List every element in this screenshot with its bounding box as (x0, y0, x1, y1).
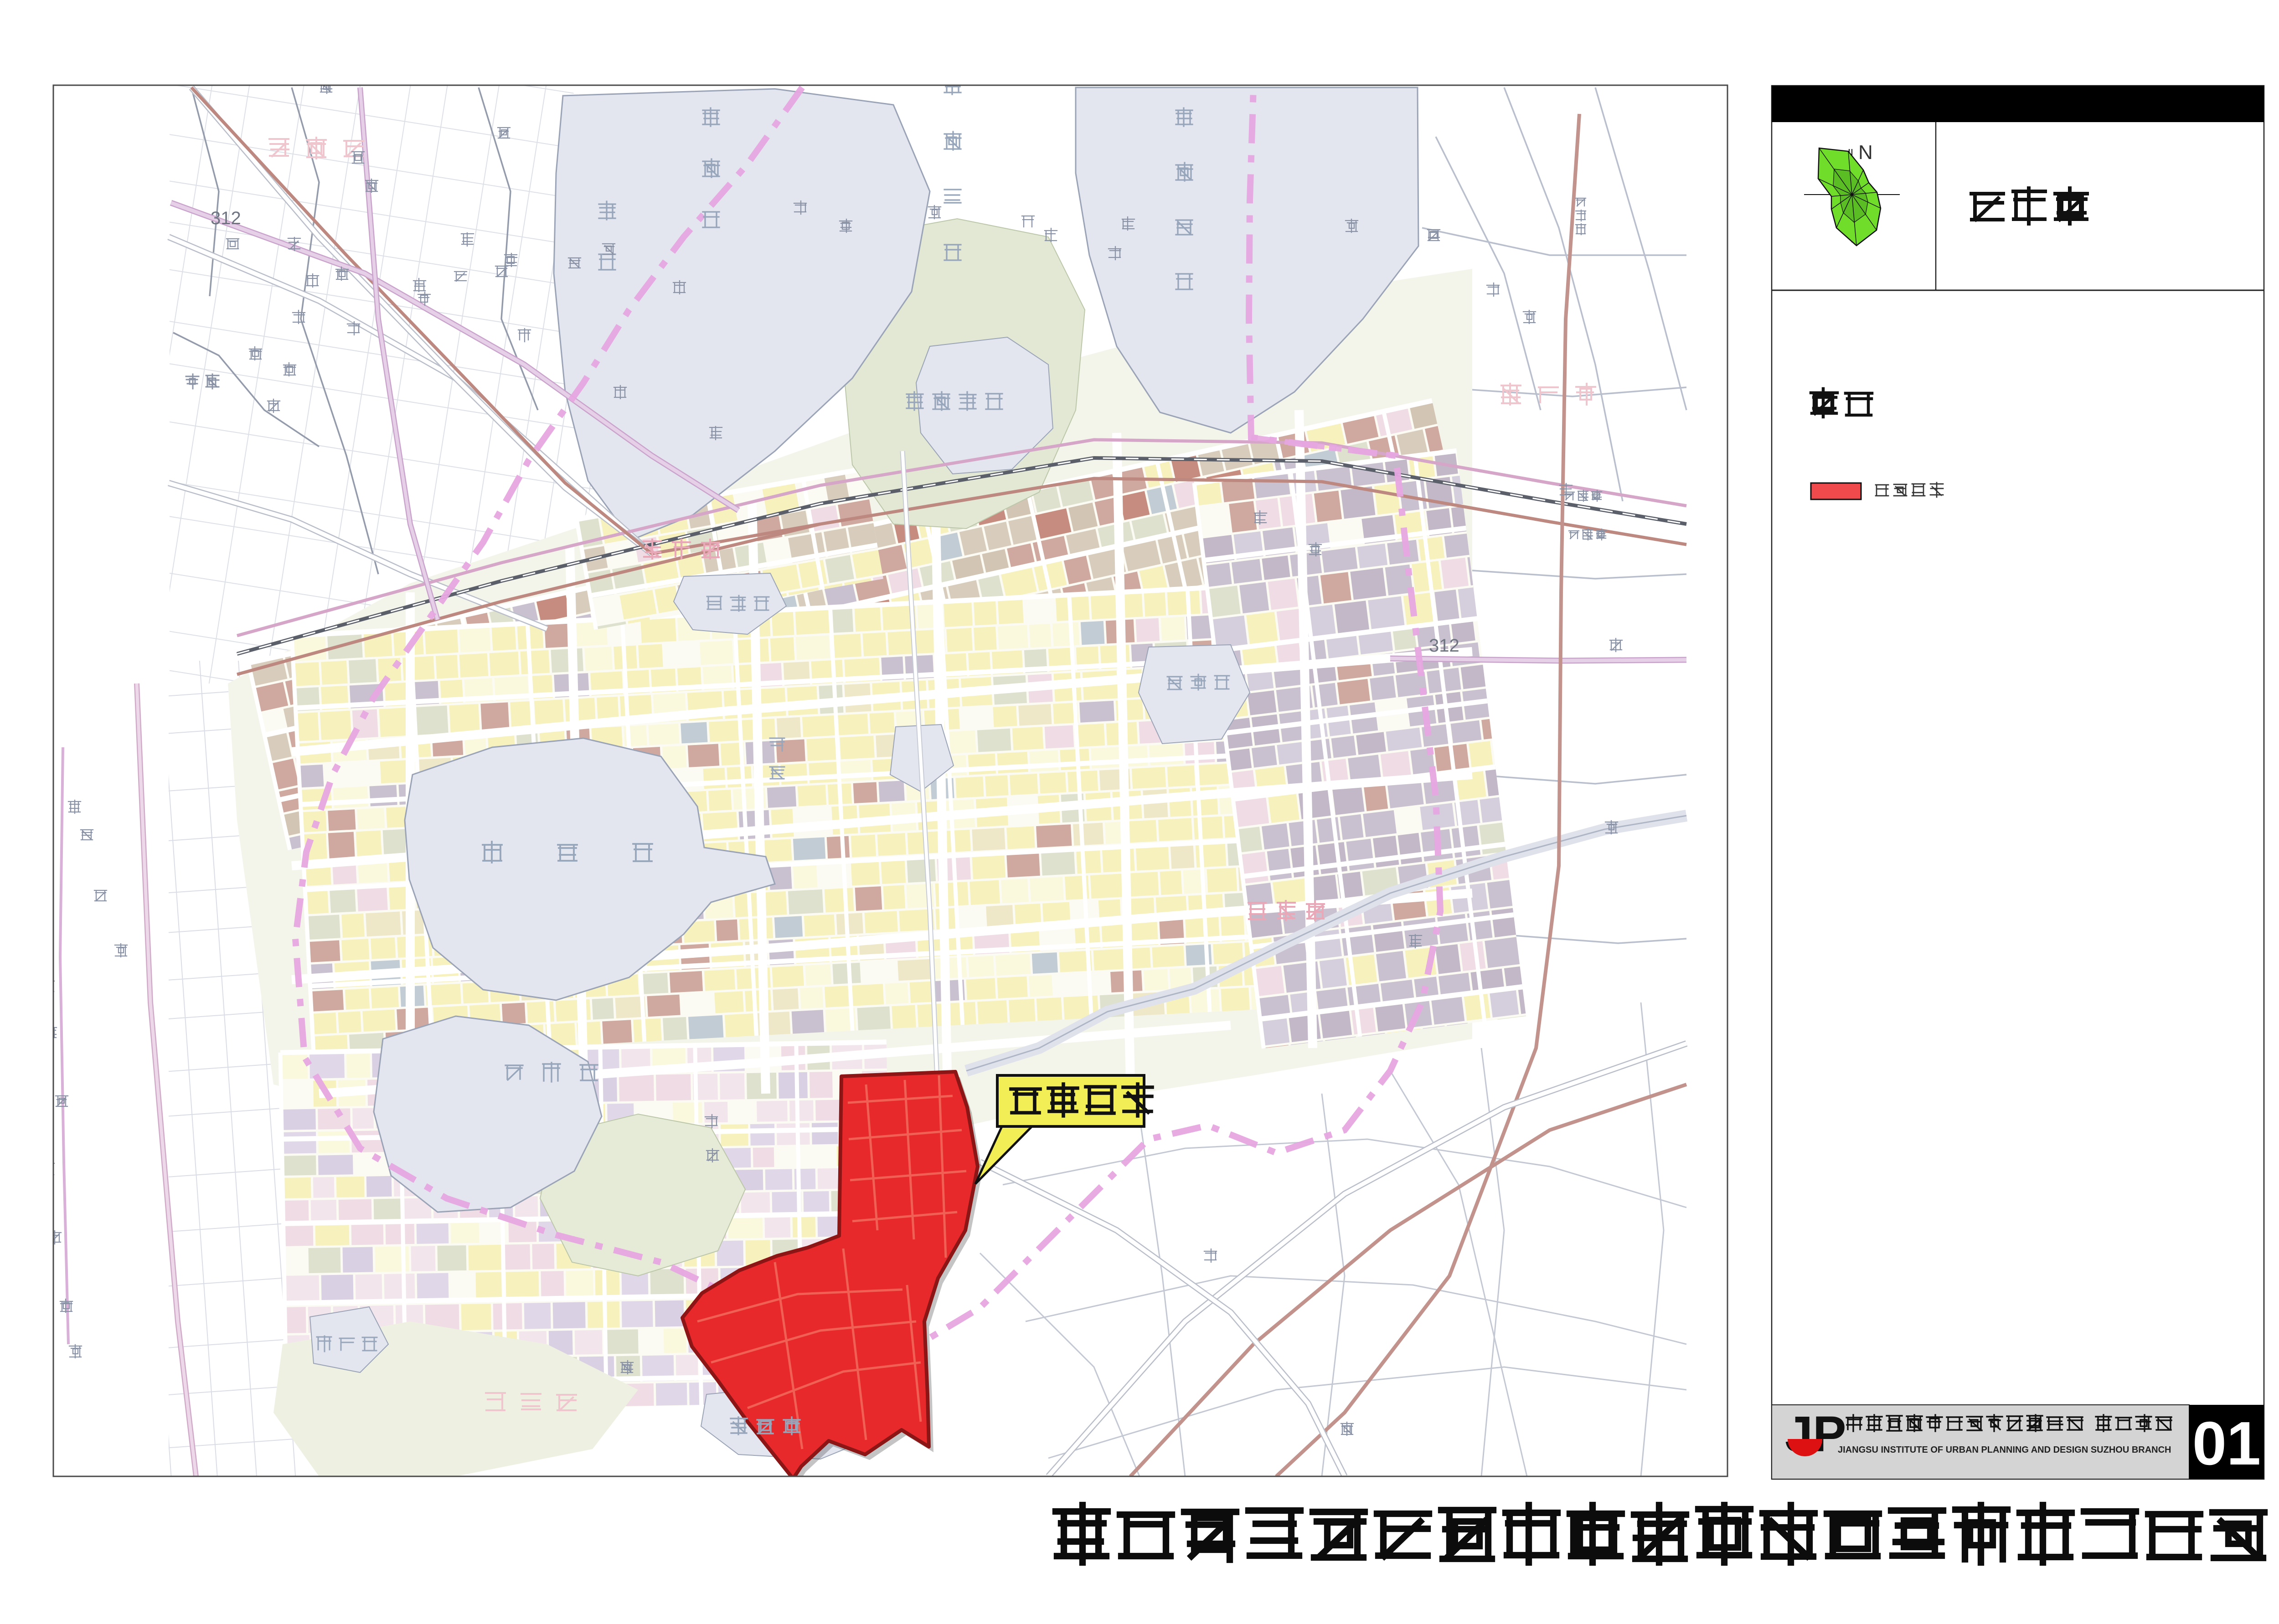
svg-text:N: N (1858, 141, 1873, 164)
svg-text:312: 312 (1429, 636, 1459, 656)
svg-text:JIANGSU INSTITUTE OF URBAN PLA: JIANGSU INSTITUTE OF URBAN PLANNING AND … (1838, 1445, 2171, 1455)
svg-text:JP: JP (1785, 1406, 1846, 1462)
svg-text:01: 01 (2192, 1409, 2261, 1478)
svg-text:312: 312 (211, 208, 241, 228)
